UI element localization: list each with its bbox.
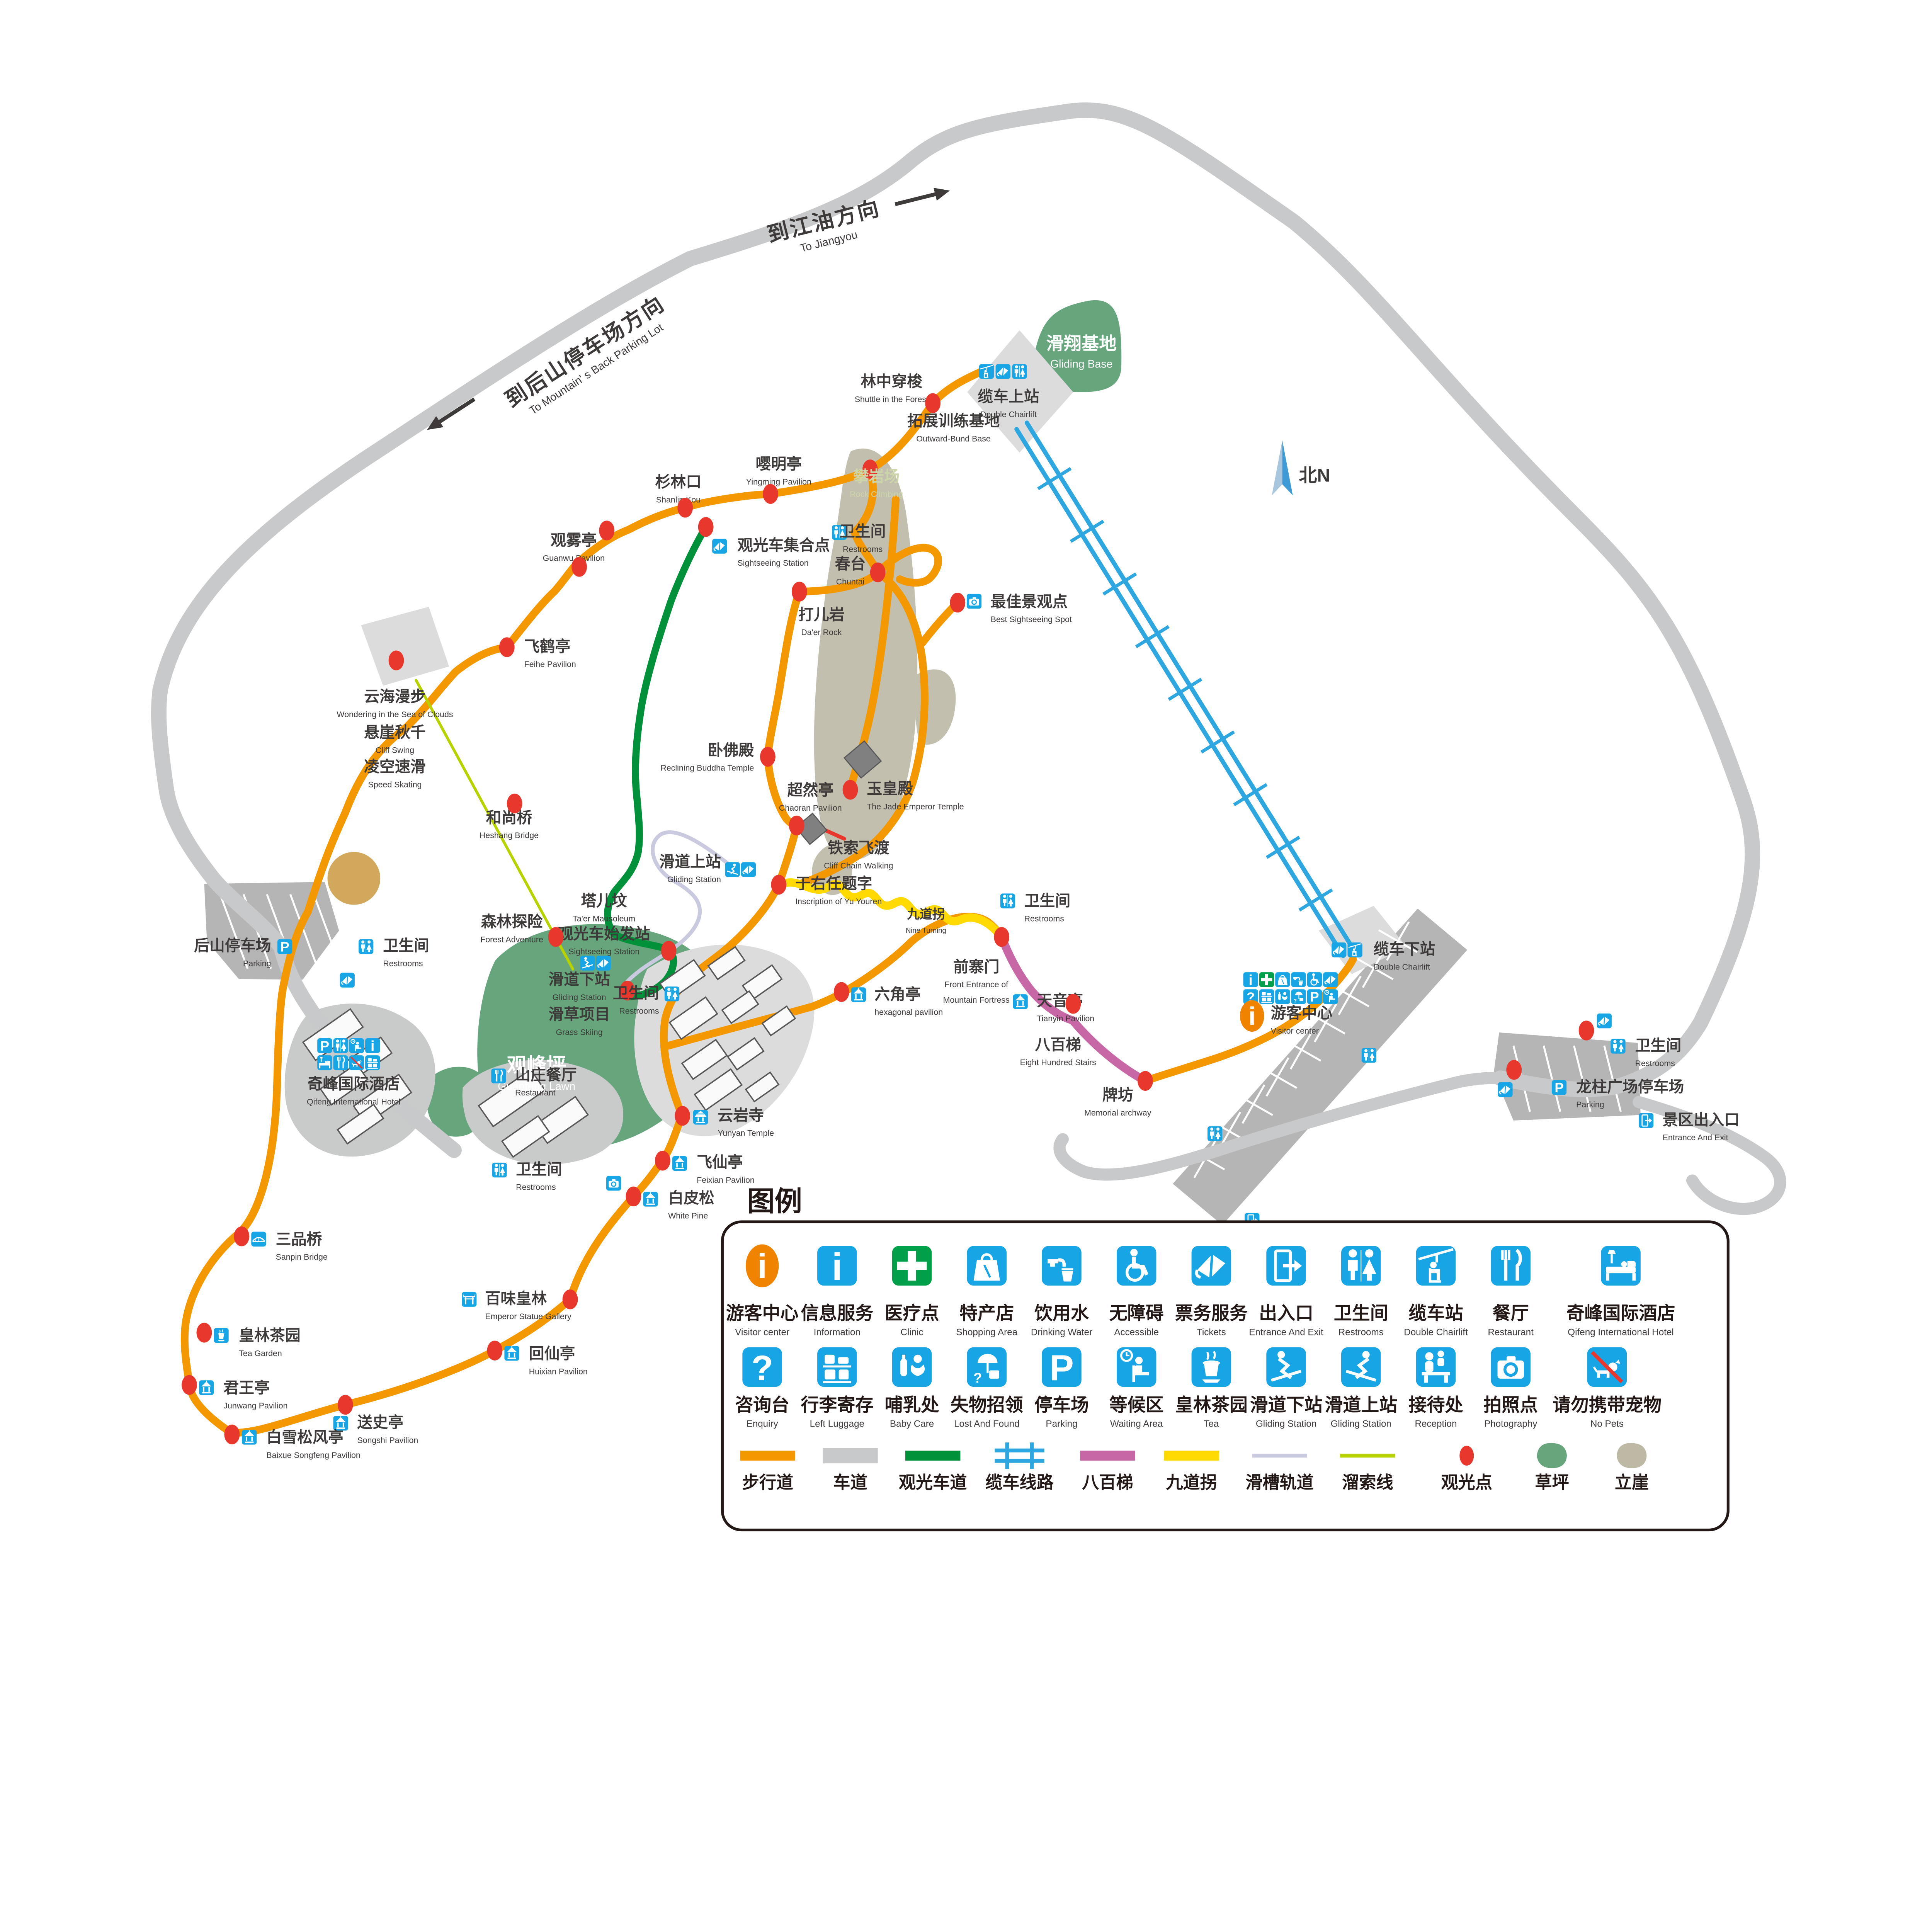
poi-restrooms-visitor-parking: [1362, 1048, 1376, 1063]
yingming-pavilion-label-en: Yingming Pavilion: [746, 477, 811, 486]
poi-chaoran-pavilion: 超然亭Chaoran Pavilion: [779, 782, 842, 813]
parking-icon[interactable]: P: [277, 939, 292, 955]
gliding-base-label-zh: 滑翔基地: [1046, 333, 1117, 353]
pavilion-icon[interactable]: [643, 1192, 658, 1206]
sea-of-clouds-label-zh: 云海漫步: [364, 688, 426, 705]
speed-skating-label-en: Speed Skating: [368, 780, 422, 789]
photography-icon[interactable]: [606, 1176, 621, 1190]
svg-text:?: ?: [752, 1349, 773, 1388]
sightseeing-start-station-dot[interactable]: [661, 941, 677, 961]
legend-zh-gliding-down: 滑道下站: [1250, 1395, 1323, 1415]
sanpin-bridge-label-zh: 三品桥: [276, 1231, 322, 1248]
inscription-yu-youren-dot[interactable]: [771, 875, 786, 895]
songshi-pavilion-label-en: Songshi Pavilion: [357, 1435, 418, 1445]
baixue-songfeng-pavilion-label-en: Baixue Songfeng Pavilion: [266, 1451, 360, 1460]
heshang-bridge-label-zh: 和尚桥: [486, 809, 532, 826]
back-parking-label-en: Parking: [243, 959, 271, 968]
chairlift-top-label-zh: 缆车上站: [978, 388, 1039, 405]
legend-en-waiting-area: Waiting Area: [1110, 1418, 1163, 1429]
back-parking-label-zh: 后山停车场: [194, 937, 271, 954]
legend-zh-left-luggage: 行李寄存: [801, 1395, 873, 1415]
svg-text:i: i: [371, 1038, 374, 1054]
gate-icon[interactable]: [462, 1292, 476, 1307]
sightseeing-meeting-point-label-zh: 观光车集合点: [738, 537, 830, 554]
inscription-yu-youren-label-zh: 于右任题字: [795, 875, 872, 892]
parking-icon[interactable]: P: [317, 1038, 332, 1054]
accessible-icon[interactable]: [1117, 1246, 1156, 1286]
songshi-pavilion-dot[interactable]: [338, 1395, 353, 1415]
tickets-icon[interactable]: [1332, 942, 1346, 957]
gliding-down-icon[interactable]: [1266, 1347, 1306, 1387]
shuttle-forest-label-en: Shuttle in the Forest: [855, 395, 929, 404]
grass-skiing-label-en: Grass Skiing: [556, 1027, 603, 1037]
pavilion-icon[interactable]: [1013, 994, 1028, 1009]
tea-garden-label-en: Tea Garden: [239, 1349, 282, 1358]
qifeng-hotel-label-en: Qifeng International Hotel: [307, 1097, 400, 1107]
best-sightseeing-spot-label-en: Best Sightseeing Spot: [991, 615, 1072, 624]
legend-zh-hotel: 奇峰国际酒店: [1566, 1303, 1675, 1323]
legend-title: 图例: [747, 1186, 802, 1217]
tianyin-pavilion-label-en: Tianyin Pavilion: [1037, 1014, 1094, 1023]
temple-icon[interactable]: [693, 1110, 708, 1124]
restaurant-icon[interactable]: [333, 1055, 348, 1070]
villa-restaurant-label-zh: 山庄餐厅: [515, 1066, 577, 1083]
hexagonal-pavilion-dot[interactable]: [834, 982, 849, 1002]
legend-en-parking: Parking: [1046, 1418, 1077, 1429]
clinic-icon[interactable]: [892, 1246, 932, 1286]
huixian-pavilion-label-zh: 回仙亭: [529, 1345, 575, 1362]
pavilion-icon[interactable]: [242, 1430, 257, 1444]
shanlin-kou-dot[interactable]: [677, 498, 693, 517]
daer-rock-dot[interactable]: [792, 582, 807, 601]
svg-text:i: i: [757, 1247, 767, 1286]
white-pine-label-zh: 白皮松: [668, 1190, 714, 1207]
legend-zh-photography: 拍照点: [1483, 1395, 1538, 1415]
svg-text:P: P: [1310, 990, 1319, 1005]
clinic-icon[interactable]: [1259, 972, 1274, 987]
tea-icon[interactable]: [1192, 1347, 1231, 1387]
tea-garden-dot[interactable]: [196, 1323, 212, 1342]
legend-en-clinic: Clinic: [900, 1327, 923, 1337]
poi-cliff-chain-walking: 铁索飞渡Cliff Chain Walking: [824, 840, 893, 871]
poi-guanwu-pavilion: 观雾亭Guanwu Pavilion: [543, 532, 605, 563]
emperor-statue-gallery-dot[interactable]: [563, 1289, 578, 1309]
poi-speed-skating: 凌空速滑Speed Skating: [364, 759, 426, 789]
tickets-icon[interactable]: [996, 364, 1010, 379]
tea-icon[interactable]: [214, 1328, 228, 1343]
sightseeing-meeting-point-label-en: Sightseeing Station: [738, 558, 809, 568]
legend-zh-gliding-up: 滑道上站: [1325, 1395, 1397, 1415]
information-icon[interactable]: i: [365, 1038, 380, 1054]
restrooms-back-parking-label-en: Restrooms: [383, 959, 423, 968]
restrooms-longzhu-dot[interactable]: [1579, 1020, 1594, 1040]
chuntai-dot[interactable]: [870, 563, 886, 582]
daer-rock-label-en: Da'er Rock: [801, 628, 842, 637]
legend-zh-waiting-area: 等候区: [1109, 1395, 1164, 1415]
forest-adventure-dot[interactable]: [548, 927, 564, 947]
emperor-statue-gallery-label-en: Emperor Statue Gallery: [485, 1312, 571, 1321]
eight-hundred-stairs-label-en: Eight Hundred Stairs: [1020, 1058, 1096, 1067]
restroom-icon[interactable]: [665, 986, 679, 1001]
restroom-icon[interactable]: [333, 1038, 348, 1053]
restroom-icon[interactable]: [492, 1163, 507, 1177]
reception-icon[interactable]: [1416, 1347, 1456, 1387]
no-pets-icon[interactable]: [1587, 1347, 1627, 1387]
legend-zh-accessible: 无障碍: [1109, 1303, 1164, 1323]
legend-en-tickets: Tickets: [1197, 1327, 1226, 1337]
legend-line-zh-4: 八百梯: [1082, 1473, 1133, 1492]
sanpin-bridge-label-en: Sanpin Bridge: [276, 1252, 328, 1262]
legend-en-gliding-up: Gliding Station: [1331, 1418, 1391, 1429]
white-pine-label-en: White Pine: [668, 1211, 708, 1220]
sightseeing-meeting-point-dot[interactable]: [698, 517, 714, 537]
reclining-buddha-temple-label-zh: 卧佛殿: [708, 742, 754, 759]
legend-line-zh-9: 草坪: [1535, 1473, 1569, 1492]
taer-mausoleum-label-en: Ta'er Mausoleum: [573, 914, 635, 923]
svg-text:P: P: [1554, 1080, 1563, 1095]
speed-skating-label-zh: 凌空速滑: [364, 759, 426, 776]
poi-taer-mausoleum: 塔儿坟Ta'er Mausoleum: [573, 892, 635, 923]
pavilion-icon[interactable]: [333, 1416, 348, 1430]
cliff-chain-walking-label-zh: 铁索飞渡: [828, 840, 889, 857]
legend-en-no-pets: No Pets: [1590, 1418, 1624, 1429]
restrooms-nine-turns-label-zh: 卫生间: [1024, 892, 1071, 909]
inscription-yu-youren-label-en: Inscription of Yu Youren: [795, 897, 882, 906]
visitor-center-icon[interactable]: i: [746, 1244, 779, 1287]
visitor-center-label-en: Visitor center: [1271, 1026, 1319, 1036]
legend-zh-chairlift: 缆车站: [1408, 1303, 1463, 1323]
poi-inscription-yu-youren: 于右任题字Inscription of Yu Youren: [795, 875, 882, 906]
information-icon[interactable]: i: [1243, 972, 1258, 988]
legend-en-hotel: Qifeng International Hotel: [1568, 1327, 1673, 1337]
legend-zh-visitor-center: 游客中心: [726, 1303, 799, 1323]
poi-chuntai: 春台Chuntai: [835, 556, 866, 587]
poi-outward-bund-base: 拓展训练基地Outward-Bund Base: [907, 412, 1000, 443]
legend-zh-tickets: 票务服务: [1175, 1303, 1248, 1323]
legend-zh-clinic: 医疗点: [885, 1303, 939, 1323]
shopping-icon[interactable]: [1275, 972, 1290, 987]
guanwu-pavilion-label-zh: 观雾亭: [551, 532, 597, 549]
gliding-up-icon[interactable]: [1341, 1347, 1381, 1387]
hotel-icon[interactable]: [317, 1055, 332, 1070]
junwang-pavilion-label-zh: 君王亭: [223, 1379, 270, 1396]
best-sightseeing-spot-label-zh: 最佳景观点: [991, 593, 1068, 610]
heshang-bridge-label-en: Heshang Bridge: [480, 831, 539, 840]
scenic-area-map: 滑翔基地Gliding Base缆车上站Double Chairlift林中穿梭…: [0, 0, 1932, 1552]
hexagonal-pavilion-label-zh: 六角亭: [874, 986, 921, 1003]
legend-en-restroom: Restrooms: [1338, 1327, 1384, 1337]
rock-climbing-label-zh: 攀岩场: [853, 468, 900, 485]
forest-adventure-label-en: Forest Adventure: [480, 935, 543, 944]
front-fortress-gate-dot[interactable]: [994, 927, 1009, 947]
feixian-pavilion-dot[interactable]: [655, 1151, 670, 1170]
legend-en-shopping: Shopping Area: [956, 1327, 1017, 1337]
legend-zh-reception: 接待处: [1408, 1395, 1463, 1415]
svg-text:P: P: [280, 940, 289, 955]
yunyan-temple-dot[interactable]: [675, 1106, 690, 1126]
poi-forest-adventure: 森林探险Forest Adventure: [480, 913, 543, 944]
junwang-pavilion-dot[interactable]: [182, 1375, 197, 1395]
gliding-down-icon[interactable]: [580, 956, 595, 970]
legend: 图例i游客中心Visitor centeri信息服务Information医疗点…: [722, 1186, 1728, 1530]
chaoran-pavilion-dot[interactable]: [789, 816, 804, 835]
legend-line-zh-0: 步行道: [742, 1473, 793, 1492]
legend-line-zh-6: 滑槽轨道: [1245, 1473, 1314, 1492]
waiting-area-icon[interactable]: [1323, 989, 1338, 1004]
scenic-entrance-exit-label-en: Entrance And Exit: [1663, 1133, 1728, 1142]
huixian-pavilion-label-en: Huixian Pavilion: [529, 1367, 588, 1376]
legend-zh-parking: 停车场: [1034, 1395, 1089, 1415]
tianyin-pavilion-dot[interactable]: [1065, 994, 1081, 1014]
restroom-icon[interactable]: [1362, 1048, 1376, 1063]
tickets-icon[interactable]: [741, 862, 756, 877]
baby-care-icon[interactable]: [1275, 989, 1290, 1004]
shanlin-kou-label-en: Shanlin Kou: [656, 495, 701, 504]
yingming-pavilion-label-zh: 嘤明亭: [756, 456, 802, 473]
white-pine-dot[interactable]: [626, 1187, 641, 1206]
left-luggage-icon[interactable]: [365, 1055, 380, 1070]
poi-photo-spot-path: [606, 1176, 621, 1190]
legend-zh-restroom: 卫生间: [1334, 1303, 1388, 1323]
shanlin-kou-label-zh: 杉林口: [655, 473, 702, 490]
poi-shanlin-kou: 杉林口Shanlin Kou: [655, 473, 702, 504]
legend-en-gliding-down: Gliding Station: [1256, 1418, 1316, 1429]
visitor-center-icon[interactable]: i: [1240, 1000, 1264, 1032]
legend-en-enquiry: Enquiry: [747, 1418, 779, 1429]
pavilion-icon[interactable]: [672, 1156, 687, 1171]
guanwu-pavilion-dot[interactable]: [571, 557, 587, 577]
legend-en-information: Information: [814, 1327, 861, 1337]
jade-emperor-temple-label-zh: 玉皇殿: [867, 781, 913, 798]
legend-zh-baby-care: 哺乳处: [885, 1395, 939, 1415]
no-pets-icon[interactable]: [349, 1055, 364, 1070]
tickets-icon[interactable]: [712, 539, 727, 553]
poi-gliding-base: 滑翔基地Gliding Base: [1046, 333, 1117, 370]
gliding-station-bottom-label-en: Gliding Station: [553, 993, 606, 1002]
tea-garden-label-zh: 皇林茶园: [239, 1327, 301, 1344]
lost-and-found-icon[interactable]: ?: [1291, 989, 1306, 1004]
legend-en-tea: Tea: [1204, 1418, 1219, 1429]
svg-text:i: i: [832, 1245, 842, 1288]
pavilion-icon[interactable]: [504, 1346, 519, 1361]
visitor-center-label-zh: 游客中心: [1271, 1005, 1333, 1022]
restrooms-temple-path-label-en: Restrooms: [619, 1007, 659, 1016]
legend-zh-shopping: 特产店: [959, 1303, 1014, 1323]
baixue-songfeng-pavilion-dot[interactable]: [224, 1425, 240, 1444]
parking-icon[interactable]: P: [1552, 1080, 1566, 1095]
chairlift-bottom-label-en: Double Chairlift: [1374, 963, 1430, 972]
restrooms-forest-label-zh: 卫生间: [840, 523, 886, 540]
jade-emperor-temple-dot[interactable]: [843, 780, 858, 799]
restaurant-icon[interactable]: [1491, 1246, 1531, 1286]
chairlift-icon[interactable]: [1347, 942, 1362, 957]
legend-zh-lost-and-found: 失物招领: [951, 1395, 1023, 1415]
gliding-station-bottom-label-zh: 滑道下站: [548, 971, 610, 988]
gliding-up-icon[interactable]: [725, 862, 740, 877]
chairlift-icon[interactable]: [1416, 1246, 1456, 1286]
legend-line-zh-10: 立崖: [1615, 1473, 1649, 1492]
pavilion-icon[interactable]: [851, 987, 866, 1002]
nine-turning-label-en: Nine Turning: [906, 926, 946, 934]
tickets-icon[interactable]: [340, 973, 355, 988]
feixian-pavilion-label-en: Feixian Pavilion: [697, 1175, 755, 1185]
restroom-icon[interactable]: [1341, 1246, 1381, 1286]
yunyan-temple-label-zh: 云岩寺: [718, 1107, 764, 1124]
tan-mound: [327, 852, 380, 905]
drinking-water-icon[interactable]: [1291, 972, 1306, 987]
chuntai-label-zh: 春台: [835, 556, 866, 573]
legend-zh-drinking-water: 饮用水: [1034, 1303, 1089, 1323]
qifeng-hotel-label-zh: 奇峰国际酒店: [307, 1076, 400, 1093]
svg-text:?: ?: [1294, 998, 1297, 1004]
legend-zh-information: 信息服务: [801, 1303, 873, 1323]
pavilion-icon[interactable]: [199, 1380, 214, 1395]
huixian-pavilion-dot[interactable]: [487, 1341, 503, 1361]
front-fortress-gate-label-en: Front Entrance of: [944, 980, 1008, 989]
restaurant-icon[interactable]: [491, 1068, 506, 1083]
baby-care-icon[interactable]: [892, 1347, 932, 1387]
taer-mausoleum-label-zh: 塔儿坟: [581, 892, 627, 909]
gliding-station-top-label-zh: 滑道上站: [659, 853, 721, 870]
front-fortress-gate-label-zh: 前寨门: [953, 958, 1000, 975]
shuttle-forest-dot[interactable]: [925, 393, 940, 413]
restrooms-longzhu-label-zh: 卫生间: [1635, 1037, 1682, 1054]
compass-label: 北N: [1299, 465, 1330, 485]
poi-sightseeing-start-station: 观光车始发站Sightseeing Station: [558, 925, 650, 956]
legend-line-zh-1: 车道: [833, 1473, 867, 1492]
hotel-icon[interactable]: [1601, 1246, 1641, 1286]
baixue-songfeng-pavilion-label-zh: 白雪松风亭: [266, 1429, 343, 1446]
nine-turning-label-zh: 九道拐: [907, 907, 945, 921]
feixian-pavilion-label-zh: 飞仙亭: [697, 1154, 743, 1171]
reclining-buddha-temple-label-en: Reclining Buddha Temple: [660, 764, 754, 773]
legend-line-zh-8: 观光点: [1441, 1473, 1492, 1492]
legend-line-zh-5: 九道拐: [1166, 1473, 1217, 1492]
legend-en-accessible: Accessible: [1114, 1327, 1159, 1337]
yunyan-temple-label-en: Yunyan Temple: [718, 1129, 774, 1138]
jade-emperor-temple-label-en: The Jade Emperor Temple: [867, 802, 964, 811]
restrooms-forest-label-en: Restrooms: [843, 545, 883, 554]
legend-en-photography: Photography: [1484, 1418, 1537, 1429]
lost-and-found-icon[interactable]: ?: [967, 1347, 1007, 1387]
exit-icon[interactable]: [1639, 1113, 1653, 1128]
bridge-icon[interactable]: [251, 1232, 266, 1247]
daer-rock-label-zh: 打儿岩: [798, 606, 845, 623]
scenic-entrance-exit-dot[interactable]: [1506, 1060, 1522, 1080]
eight-hundred-stairs-label-zh: 八百梯: [1035, 1036, 1081, 1053]
exit-icon[interactable]: [1266, 1246, 1306, 1286]
legend-zh-enquiry: 咨询台: [735, 1395, 789, 1415]
poi-yingming-pavilion: 嘤明亭Yingming Pavilion: [746, 456, 811, 486]
sightseeing-start-station-label-en: Sightseeing Station: [568, 947, 639, 956]
svg-text:P: P: [1049, 1347, 1074, 1388]
left-luggage-icon[interactable]: [817, 1347, 857, 1387]
outward-bund-base-label-en: Outward-Bund Base: [916, 434, 990, 443]
restrooms-back-parking-label-zh: 卫生间: [383, 937, 429, 954]
gliding-base-label-en: Gliding Base: [1050, 358, 1112, 370]
gliding-station-top-label-en: Gliding Station: [667, 875, 721, 884]
legend-en-reception: Reception: [1415, 1418, 1457, 1429]
legend-en-chairlift: Double Chairlift: [1404, 1327, 1468, 1337]
information-icon[interactable]: i: [817, 1245, 857, 1288]
drinking-water-icon[interactable]: [1042, 1246, 1082, 1286]
legend-en-visitor-center: Visitor center: [735, 1327, 789, 1337]
photography-icon[interactable]: [967, 594, 981, 609]
legend-en-lost-and-found: Lost And Found: [954, 1418, 1020, 1429]
waiting-area-icon[interactable]: [349, 1038, 364, 1053]
shuttle-forest-label-zh: 林中穿梭: [861, 373, 923, 390]
heshang-bridge-dot[interactable]: [507, 794, 522, 813]
legend-en-drinking-water: Drinking Water: [1031, 1327, 1092, 1337]
poi-feihe-pavilion: 飞鹤亭Feihe Pavilion: [524, 638, 576, 669]
restroom-icon[interactable]: [359, 939, 373, 954]
tickets-icon[interactable]: [1597, 1014, 1612, 1028]
songshi-pavilion-label-zh: 送史亭: [357, 1414, 403, 1431]
legend-line-zh-7: 溜索线: [1342, 1473, 1393, 1492]
parking-icon[interactable]: P: [1042, 1347, 1082, 1388]
memorial-archway-dot[interactable]: [1138, 1071, 1153, 1091]
tickets-icon[interactable]: [1498, 1082, 1512, 1097]
restroom-icon[interactable]: [1207, 1126, 1222, 1141]
parking-icon[interactable]: P: [1307, 989, 1322, 1005]
feihe-pavilion-dot[interactable]: [499, 637, 515, 657]
restrooms-nine-turns-label-en: Restrooms: [1024, 914, 1064, 923]
tickets-icon[interactable]: [1192, 1246, 1231, 1286]
restroom-icon[interactable]: [1012, 364, 1027, 379]
sanpin-bridge-dot[interactable]: [234, 1226, 249, 1246]
restrooms-south-label-zh: 卫生间: [516, 1161, 562, 1178]
yingming-pavilion-dot[interactable]: [763, 484, 778, 504]
poi-daer-rock: 打儿岩Da'er Rock: [798, 606, 845, 637]
poi-rock-climbing: 攀岩场Rock Climbing: [850, 468, 903, 499]
grass-skiing-label-zh: 滑草项目: [548, 1006, 610, 1023]
cliff-chain-walking-label-en: Cliff Chain Walking: [824, 861, 893, 871]
front-fortress-gate-label-en2: Mountain Fortress: [943, 995, 1010, 1005]
poi-heshang-bridge: 和尚桥Heshang Bridge: [480, 809, 539, 840]
restroom-icon[interactable]: [1611, 1039, 1625, 1053]
rock-climbing-label-en: Rock Climbing: [850, 490, 903, 499]
photography-icon[interactable]: [1491, 1347, 1531, 1387]
sea-of-clouds-dot[interactable]: [389, 651, 404, 670]
restrooms-south-label-en: Restrooms: [516, 1182, 556, 1192]
tickets-icon[interactable]: [1323, 972, 1338, 987]
left-luggage-icon[interactable]: [1259, 989, 1274, 1004]
sight-spot-dot[interactable]: [599, 520, 614, 540]
waiting-area-icon[interactable]: [1117, 1347, 1156, 1387]
restroom-icon[interactable]: [1000, 893, 1015, 908]
reclining-buddha-temple-dot[interactable]: [760, 747, 776, 767]
accessible-icon[interactable]: [1307, 972, 1322, 987]
legend-en-baby-care: Baby Care: [890, 1418, 934, 1429]
hexagonal-pavilion-label-en: hexagonal pavilion: [874, 1007, 943, 1017]
chaoran-pavilion-label-en: Chaoran Pavilion: [779, 803, 842, 813]
feihe-pavilion-label-en: Feihe Pavilion: [524, 660, 576, 669]
best-sightseeing-spot-dot[interactable]: [950, 593, 965, 612]
restrooms-longzhu-label-en: Restrooms: [1635, 1059, 1675, 1068]
svg-text:i: i: [1249, 972, 1253, 988]
cliff-swing-label-en: Cliff Swing: [376, 745, 415, 755]
villa-restaurant-label-en: Restaurant: [515, 1088, 556, 1097]
chairlift-icon[interactable]: [979, 364, 994, 379]
shopping-icon[interactable]: [967, 1246, 1007, 1286]
svg-text:?: ?: [973, 1370, 982, 1386]
enquiry-icon[interactable]: ?: [742, 1347, 782, 1388]
memorial-archway-label-en: Memorial archway: [1084, 1108, 1151, 1117]
junwang-pavilion-label-en: Junwang Pavilion: [223, 1401, 287, 1410]
tickets-icon[interactable]: [596, 956, 611, 970]
restrooms-temple-path-label-zh: 卫生间: [613, 985, 659, 1002]
longzhu-square-parking-label-en: Parking: [1576, 1100, 1604, 1109]
